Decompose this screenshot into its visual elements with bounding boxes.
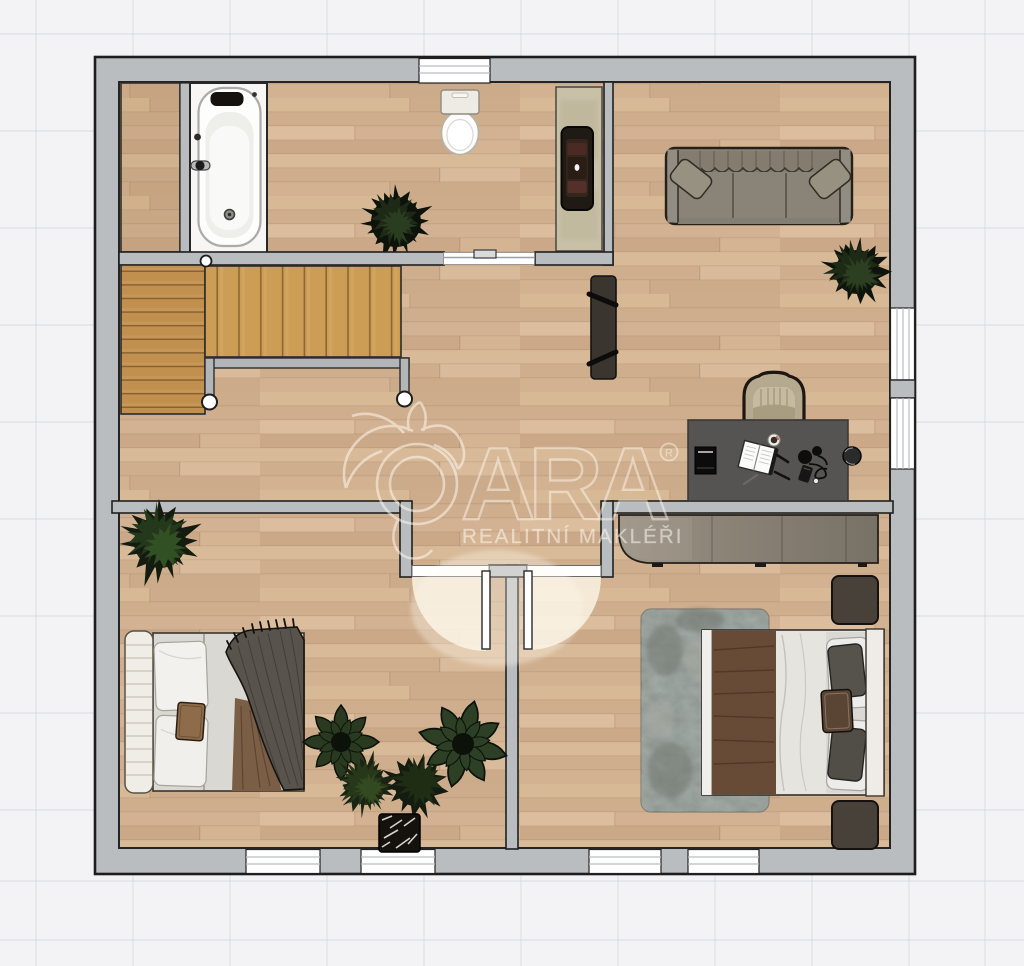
svg-text:R: R [665,448,673,460]
svg-text:REALITNÍ MAKLÉŘI: REALITNÍ MAKLÉŘI [462,525,684,548]
svg-text:ARA: ARA [461,426,668,541]
